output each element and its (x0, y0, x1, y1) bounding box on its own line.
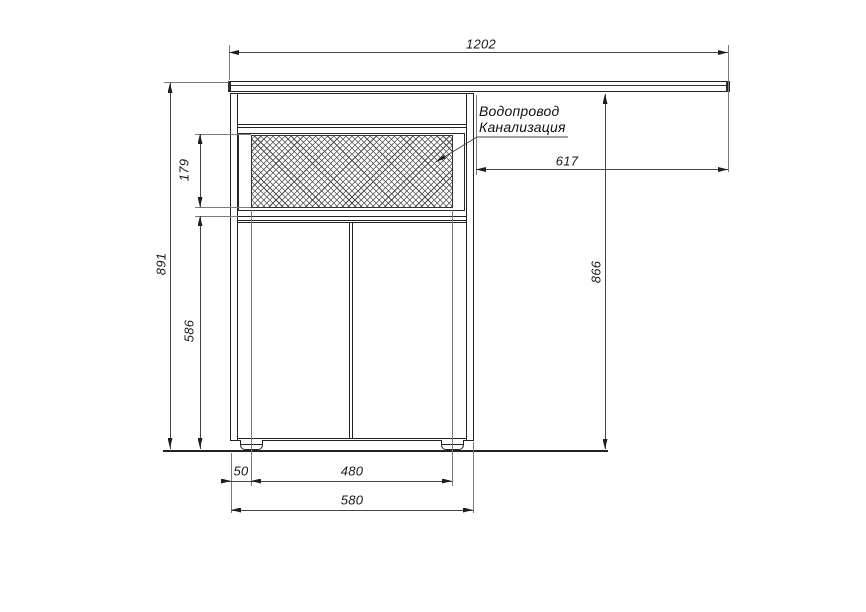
door-split-gap (349, 223, 353, 438)
arrow-580-right (463, 508, 473, 513)
arrow-50-480-shared (251, 479, 261, 484)
countertop (228, 81, 729, 92)
arrow-179-bottom (198, 197, 203, 207)
arrow-617-right (718, 167, 728, 172)
ext-line-top-right (728, 45, 729, 172)
ext-line-480-left (251, 210, 252, 486)
dim-line-866 (605, 94, 606, 449)
arrow-586-top (198, 216, 203, 226)
ext-line-480-right (452, 210, 453, 486)
dim-line-891 (170, 83, 171, 449)
ext-line-top-left (229, 45, 230, 80)
ext-line-586-top (195, 216, 238, 217)
ext-line-580-left (231, 453, 232, 513)
technical-drawing-canvas: 1202 617 866 891 179 586 50 480 580 Водо… (0, 0, 866, 612)
ext-line-179-top (195, 134, 251, 135)
dim-text-586: 586 (182, 320, 197, 343)
left-foot-flange-line (240, 444, 263, 445)
arrow-891-top (168, 83, 173, 93)
label-water-supply: Водопровод (479, 104, 559, 119)
arrow-480-right (442, 479, 452, 484)
ext-line-179-bottom (195, 207, 251, 208)
dim-line-480 (251, 481, 452, 482)
dim-text-179: 179 (177, 159, 192, 182)
countertop-inner-line (230, 85, 727, 86)
arrow-891-bottom (168, 438, 173, 448)
arrow-1202-right (718, 50, 728, 55)
dim-text-1202: 1202 (466, 37, 496, 52)
ext-line-891-top (164, 82, 229, 83)
arrow-179-top (198, 134, 203, 144)
floor-line (163, 450, 608, 452)
leader-arrowhead (436, 155, 445, 162)
left-foot (240, 440, 263, 450)
arrow-1202-left (229, 50, 239, 55)
dim-text-50: 50 (233, 464, 248, 479)
dim-text-480: 480 (341, 464, 364, 479)
arrow-866-top (603, 94, 608, 104)
lower-rail (238, 216, 466, 221)
arrow-50-left-outside (221, 479, 231, 484)
dim-text-580: 580 (341, 493, 364, 508)
dim-line-1202 (229, 52, 728, 53)
dim-text-866: 866 (589, 261, 604, 284)
arrow-580-left (231, 508, 241, 513)
dim-line-179 (200, 134, 201, 207)
ext-line-580-right (473, 442, 474, 513)
arrow-866-bottom (603, 439, 608, 449)
dim-text-891: 891 (154, 253, 169, 276)
dim-line-580 (231, 510, 473, 511)
leader-line (410, 125, 580, 180)
arrow-586-bottom (198, 438, 203, 448)
dim-line-586 (200, 216, 201, 449)
